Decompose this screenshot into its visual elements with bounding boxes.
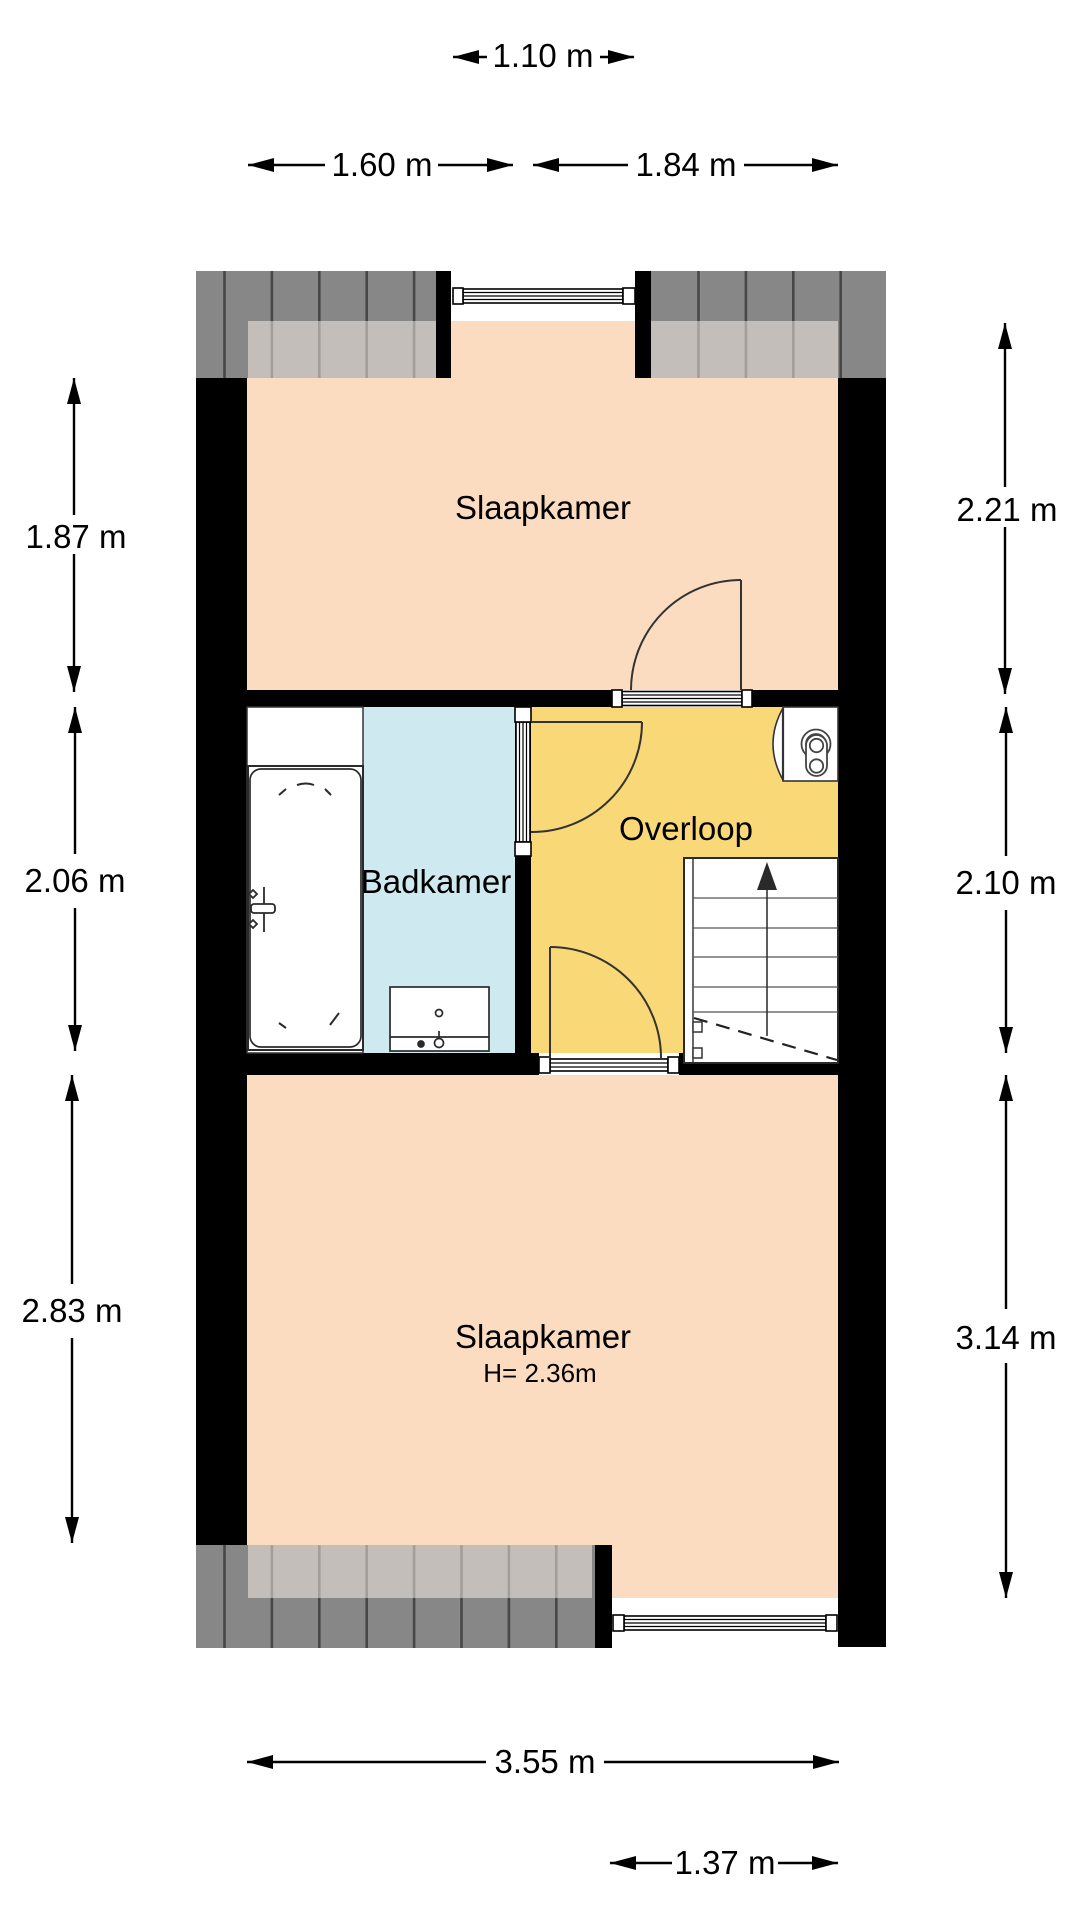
- svg-text:2.06 m: 2.06 m: [25, 862, 126, 899]
- svg-text:1.84 m: 1.84 m: [636, 146, 737, 183]
- svg-text:Slaapkamer: Slaapkamer: [455, 489, 631, 526]
- svg-text:1.37 m: 1.37 m: [675, 1844, 776, 1881]
- svg-text:H= 2.36m: H= 2.36m: [483, 1358, 596, 1388]
- svg-text:3.55 m: 3.55 m: [495, 1743, 596, 1780]
- svg-text:2.21 m: 2.21 m: [957, 491, 1058, 528]
- svg-text:2.10 m: 2.10 m: [956, 864, 1057, 901]
- svg-text:1.60 m: 1.60 m: [332, 146, 433, 183]
- svg-text:1.10 m: 1.10 m: [493, 37, 594, 74]
- svg-text:2.83 m: 2.83 m: [22, 1292, 123, 1329]
- svg-text:3.14 m: 3.14 m: [956, 1319, 1057, 1356]
- svg-text:Overloop: Overloop: [619, 810, 753, 847]
- svg-text:1.87 m: 1.87 m: [26, 518, 127, 555]
- svg-text:Badkamer: Badkamer: [361, 863, 511, 900]
- svg-text:Slaapkamer: Slaapkamer: [455, 1318, 631, 1355]
